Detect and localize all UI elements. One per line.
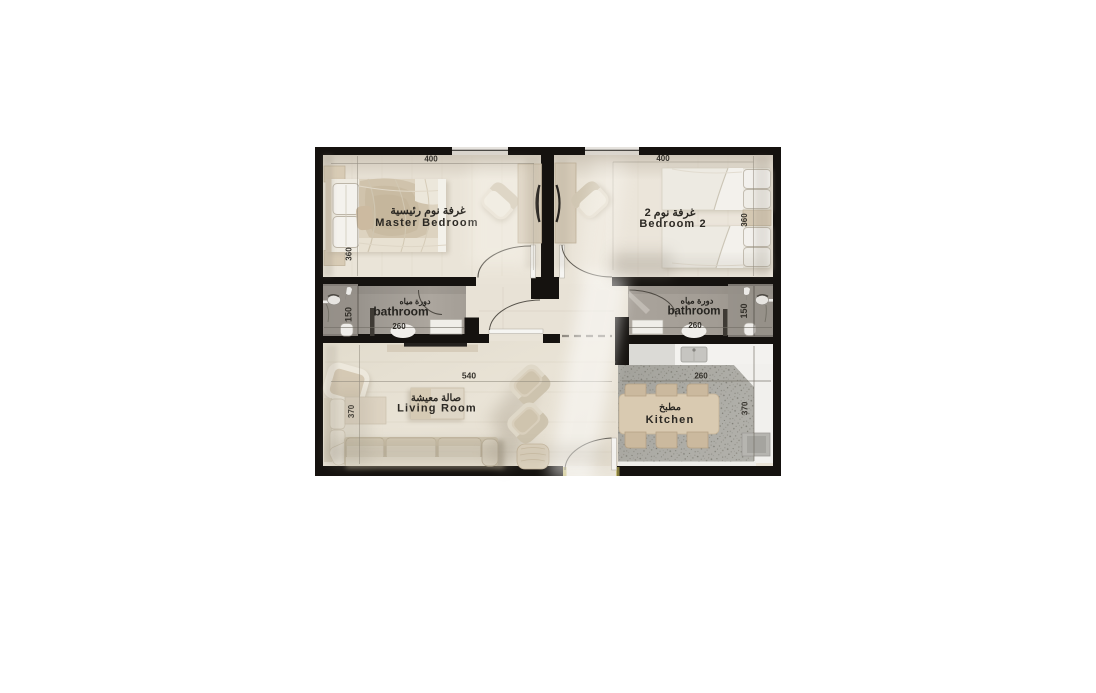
- svg-text:bathroom: bathroom: [373, 305, 428, 319]
- svg-text:400: 400: [656, 154, 670, 163]
- svg-text:360: 360: [345, 247, 354, 261]
- svg-text:540: 540: [462, 371, 476, 381]
- svg-text:260: 260: [392, 322, 406, 331]
- svg-text:غرفة نوم رئيسية: غرفة نوم رئيسية: [390, 205, 466, 217]
- svg-text:Master Bedroom: Master Bedroom: [375, 217, 479, 229]
- svg-text:360: 360: [740, 213, 749, 227]
- svg-text:400: 400: [424, 155, 438, 164]
- svg-text:Living Room: Living Room: [397, 403, 477, 415]
- svg-text:150: 150: [344, 307, 354, 322]
- svg-text:260: 260: [688, 321, 702, 330]
- svg-text:260: 260: [694, 372, 708, 381]
- svg-text:Bedroom 2: Bedroom 2: [639, 218, 706, 230]
- svg-text:150: 150: [739, 303, 749, 318]
- svg-text:370: 370: [741, 401, 750, 415]
- svg-text:مطبخ: مطبخ: [659, 402, 681, 413]
- svg-text:Kitchen: Kitchen: [646, 414, 695, 426]
- svg-text:bathroom: bathroom: [667, 306, 720, 318]
